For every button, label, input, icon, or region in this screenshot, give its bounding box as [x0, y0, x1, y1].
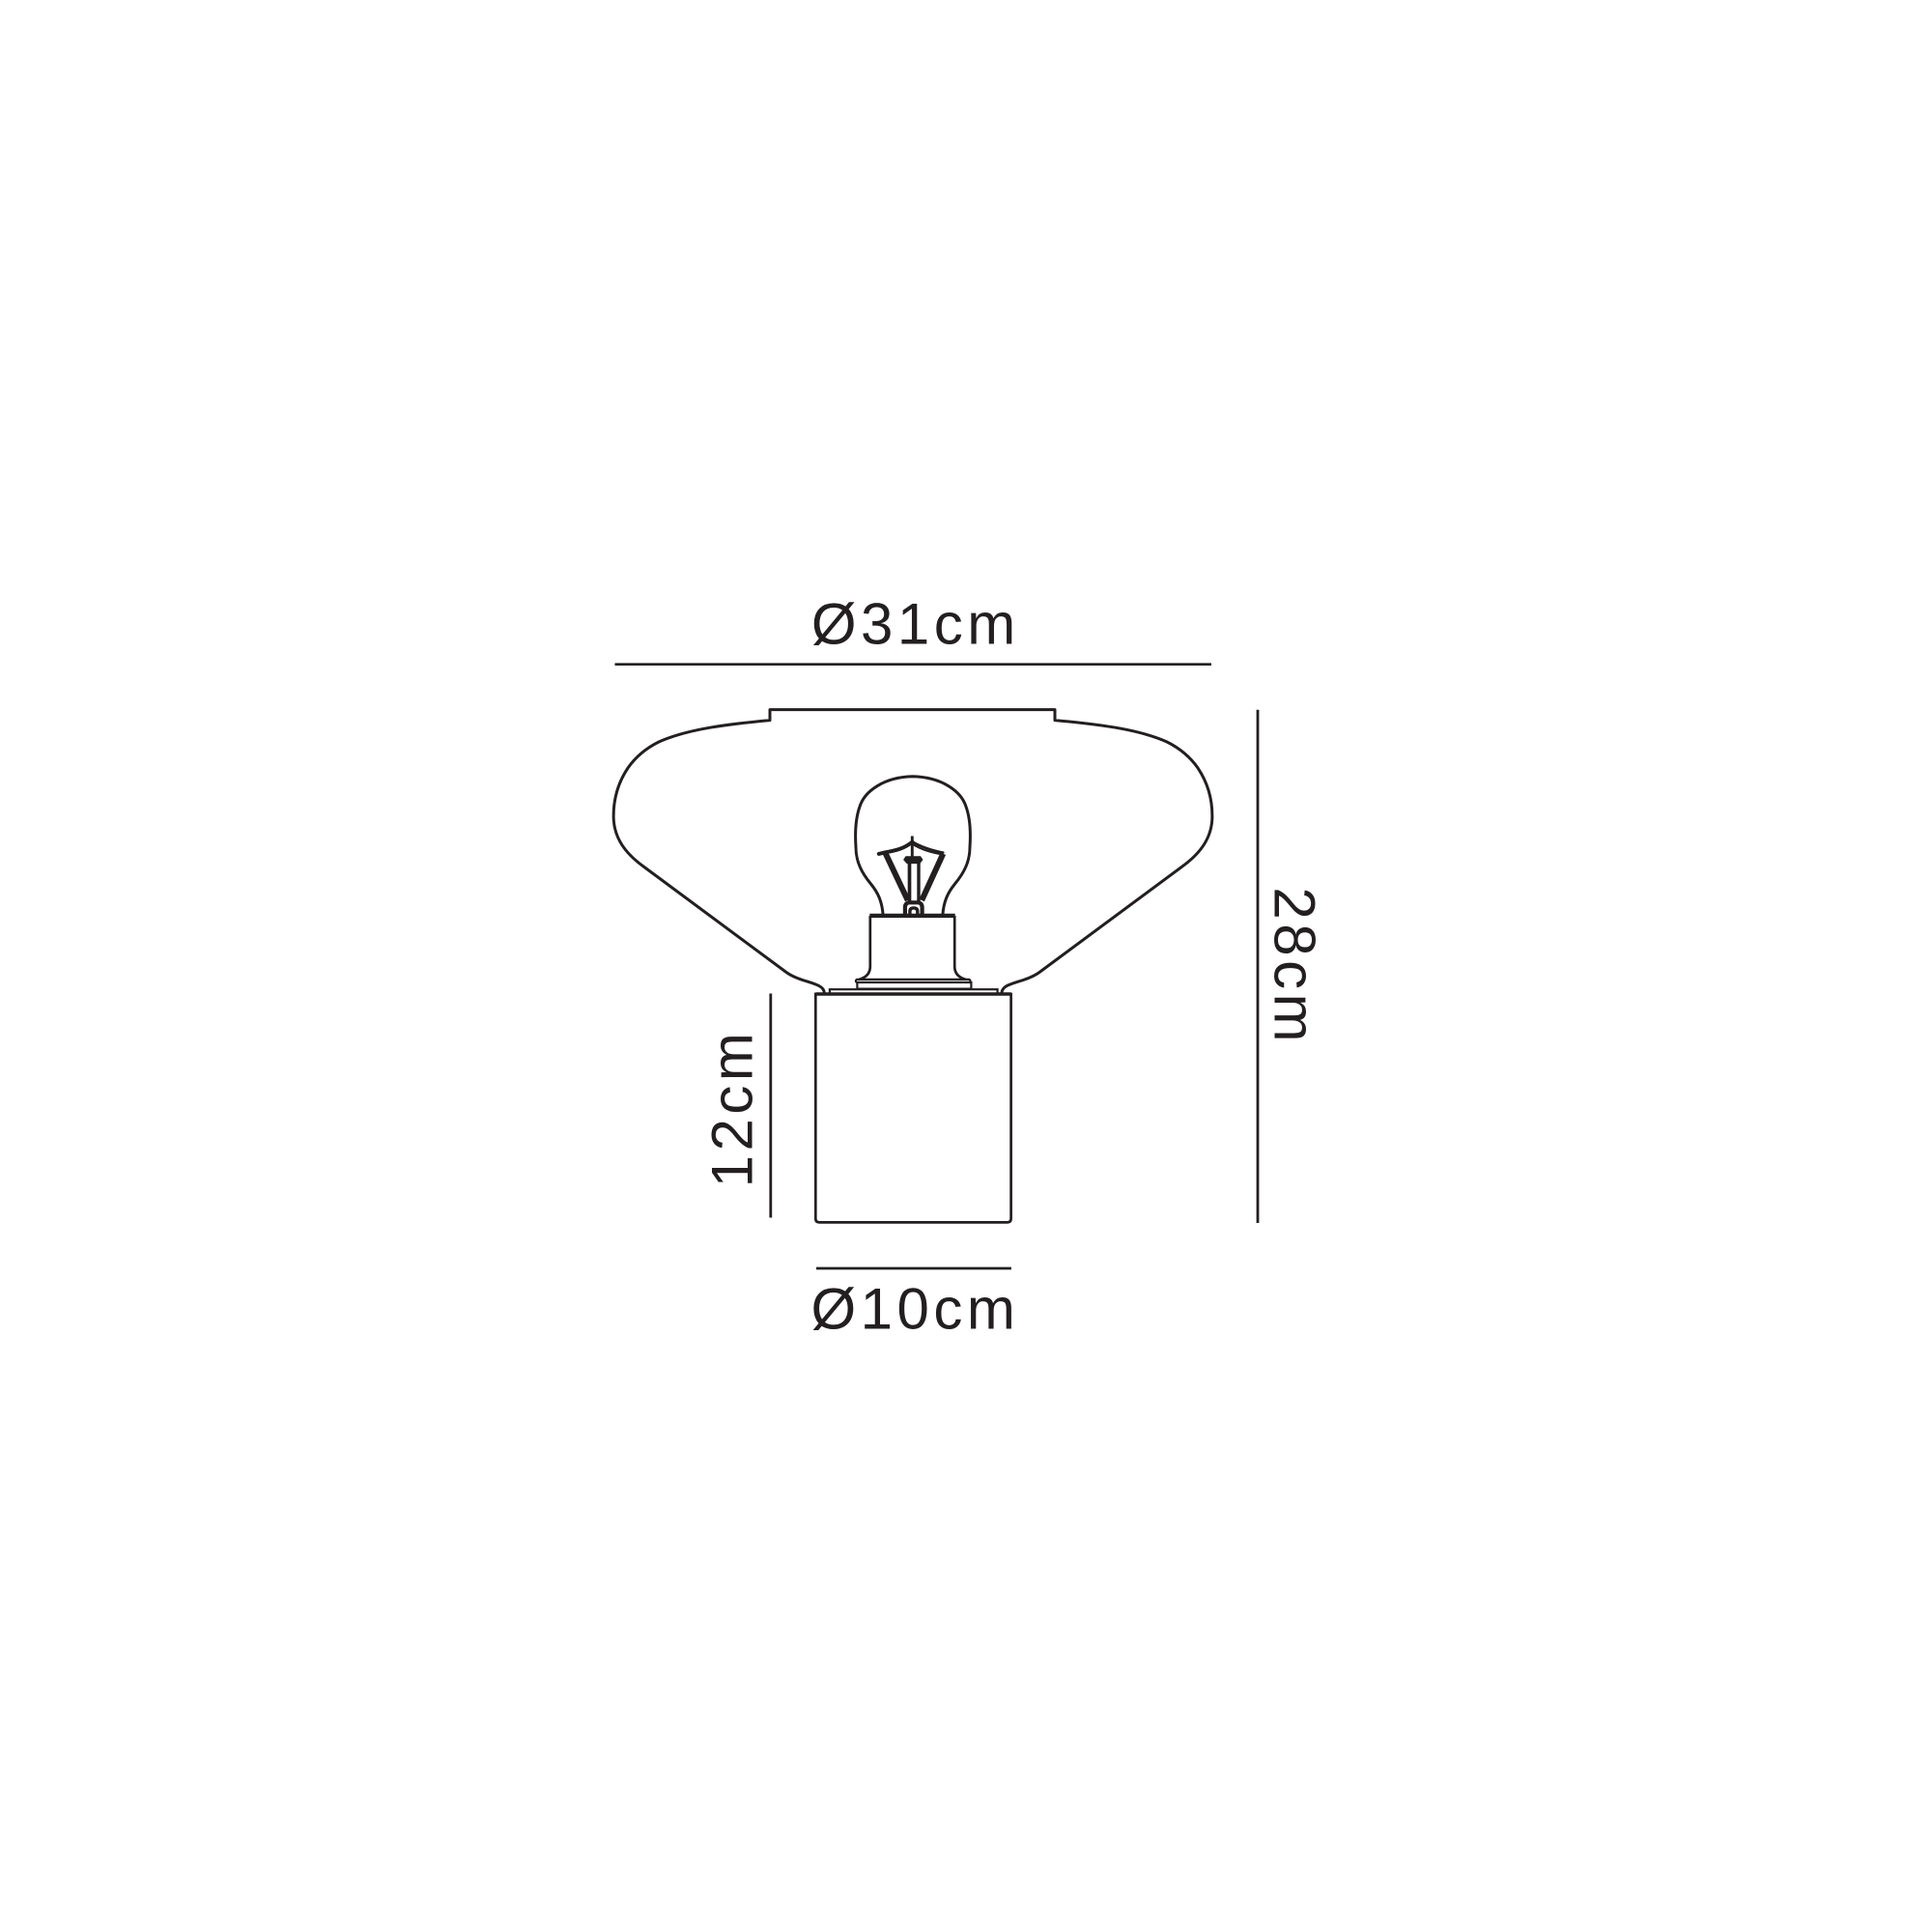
svg-text:Ø31cm: Ø31cm	[811, 592, 1020, 657]
svg-text:28cm: 28cm	[1263, 887, 1327, 1046]
svg-text:Ø10cm: Ø10cm	[810, 1277, 1019, 1342]
svg-text:12cm: 12cm	[700, 1029, 765, 1188]
